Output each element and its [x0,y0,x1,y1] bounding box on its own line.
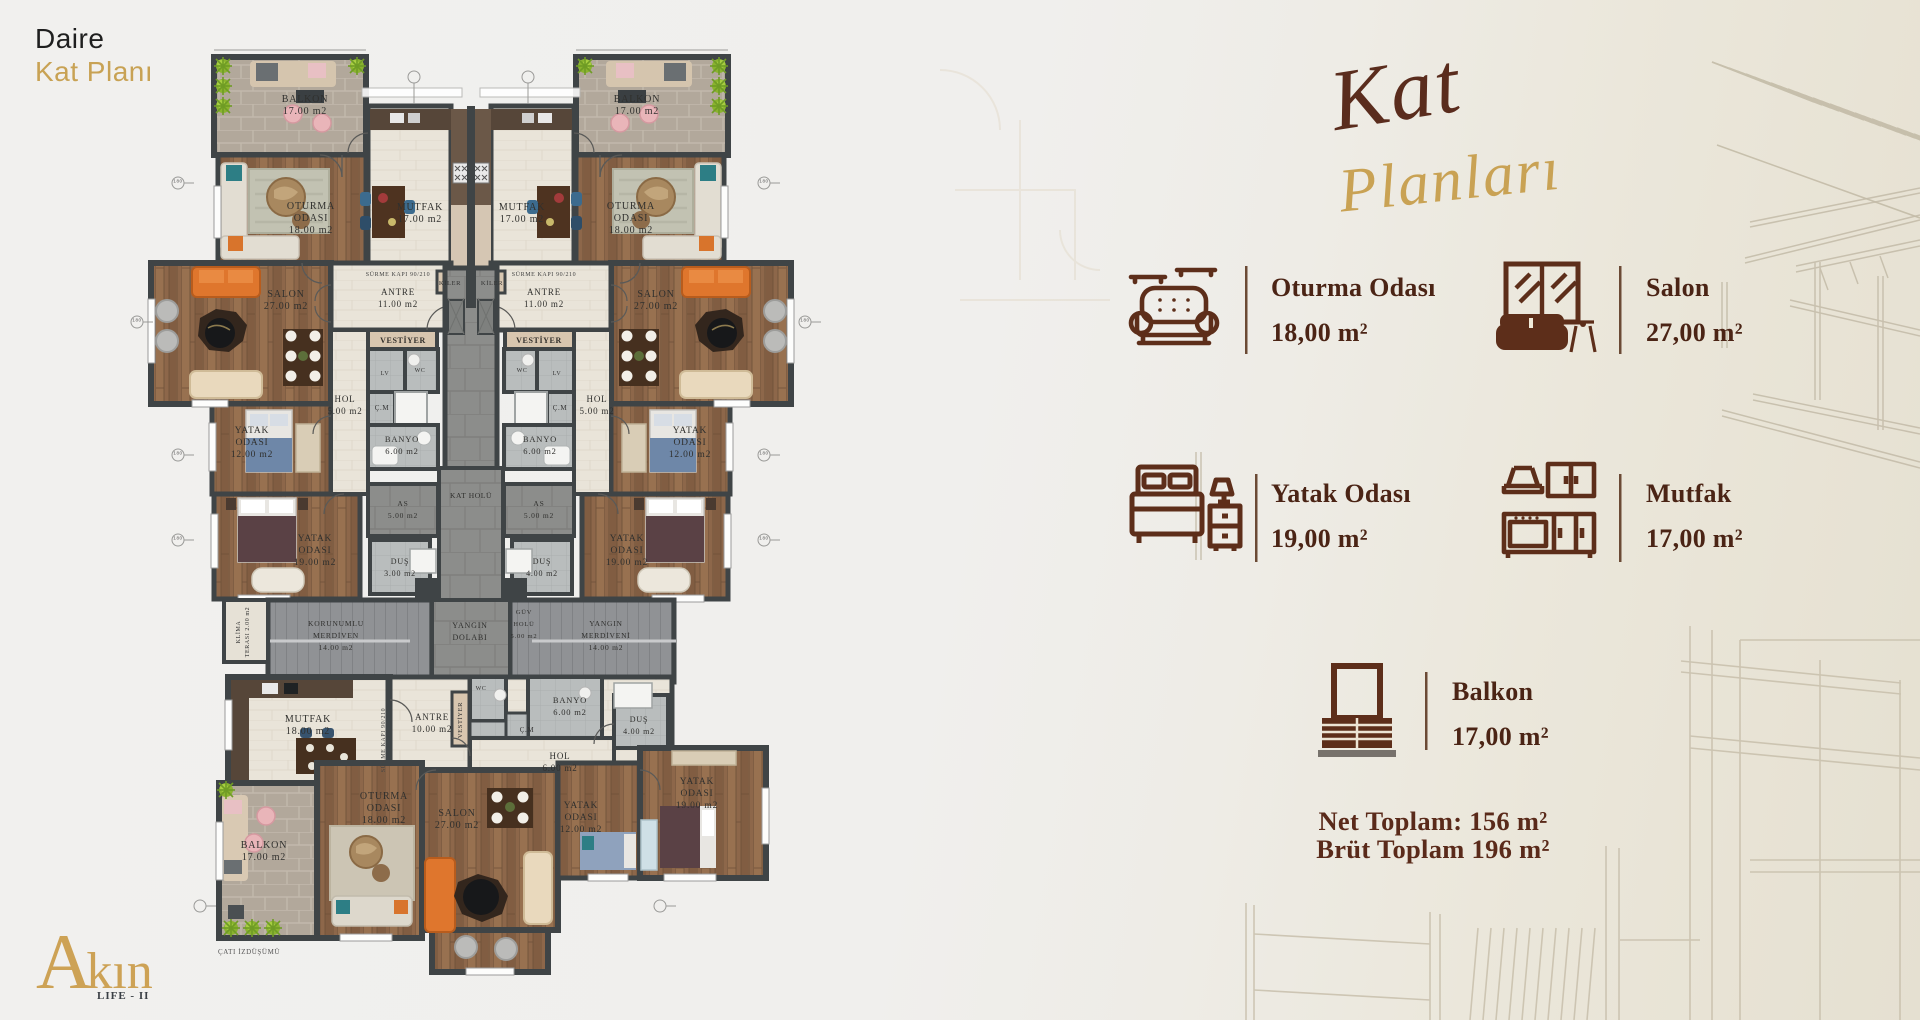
svg-text:180: 180 [173,451,182,456]
svg-text:Oturma Odası: Oturma Odası [1271,273,1436,302]
svg-text:YATAK: YATAK [610,534,644,544]
svg-text:BALKON: BALKON [282,94,328,105]
svg-text:180: 180 [173,179,182,184]
svg-text:18.00 m2: 18.00 m2 [286,726,330,737]
svg-text:18.00 m2: 18.00 m2 [289,225,333,236]
svg-text:KİLER: KİLER [439,280,461,287]
svg-text:ODASI: ODASI [610,546,643,556]
svg-text:OTURMA: OTURMA [287,201,335,212]
svg-text:Mutfak: Mutfak [1646,479,1732,508]
svg-text:Balkon: Balkon [1452,677,1534,706]
svg-text:YATAK: YATAK [235,426,269,436]
svg-text:14.00 m2: 14.00 m2 [589,643,624,652]
svg-text:12.00 m2: 12.00 m2 [669,450,711,460]
svg-text:KİLER: KİLER [481,280,503,287]
svg-text:17.00 m2: 17.00 m2 [398,214,442,225]
svg-text:VESTİYER: VESTİYER [516,335,562,345]
svg-text:17,00 m²: 17,00 m² [1452,722,1549,751]
svg-text:AS: AS [533,499,544,508]
svg-text:SÜRME KAPI 90/210: SÜRME KAPI 90/210 [380,708,387,773]
svg-text:19.00 m2: 19.00 m2 [676,801,718,811]
svg-text:180: 180 [759,536,768,541]
svg-text:12.00 m2: 12.00 m2 [560,825,602,835]
svg-text:17.00 m2: 17.00 m2 [242,852,286,863]
svg-text:5.00 m2: 5.00 m2 [327,406,362,416]
svg-text:180: 180 [173,536,182,541]
svg-text:DUŞ: DUŞ [533,557,551,566]
svg-text:YATAK: YATAK [680,777,714,787]
svg-text:SALON: SALON [637,289,674,300]
svg-text:GÜV: GÜV [516,609,532,616]
svg-text:LIFE - II: LIFE - II [97,990,149,1002]
svg-text:WC: WC [476,686,487,692]
svg-text:27,00 m²: 27,00 m² [1646,318,1743,347]
svg-text:LV: LV [553,371,562,377]
svg-text:YANGIN: YANGIN [589,619,623,628]
svg-text:27.00 m2: 27.00 m2 [634,301,678,312]
svg-text:HOL: HOL [550,751,571,761]
svg-text:AS: AS [397,499,408,508]
svg-text:OTURMA: OTURMA [607,201,655,212]
svg-text:BALKON: BALKON [614,94,660,105]
svg-text:11.00 m2: 11.00 m2 [524,299,564,309]
svg-text:MERDİVENİ: MERDİVENİ [581,631,630,640]
svg-text:KLİMA: KLİMA [235,621,242,644]
svg-text:YATAK: YATAK [298,534,332,544]
svg-text:ANTRE: ANTRE [415,712,449,722]
svg-text:YANGIN: YANGIN [452,621,487,630]
svg-text:Salon: Salon [1646,273,1710,302]
svg-text:TERASI 2.00 m2: TERASI 2.00 m2 [245,607,251,658]
svg-text:10.00 m2: 10.00 m2 [412,724,452,734]
svg-text:19.00 m2: 19.00 m2 [606,558,648,568]
svg-text:180: 180 [132,318,141,323]
svg-text:5.00 m2: 5.00 m2 [511,633,538,640]
svg-text:6.00 m2: 6.00 m2 [542,763,577,773]
svg-text:Daire: Daire [35,23,104,54]
svg-text:18.00 m2: 18.00 m2 [609,225,653,236]
svg-text:18.00 m2: 18.00 m2 [362,815,406,826]
svg-text:Ç.M: Ç.M [375,404,390,412]
svg-text:6.00 m2: 6.00 m2 [523,446,556,456]
svg-text:YATAK: YATAK [564,801,598,811]
svg-text:SALON: SALON [438,808,475,819]
svg-text:180: 180 [800,318,809,323]
svg-text:KAT HOLÜ: KAT HOLÜ [450,491,492,500]
svg-text:SALON: SALON [267,289,304,300]
svg-text:HOL: HOL [587,394,608,404]
svg-text:Ç.M: Ç.M [520,726,535,734]
svg-text:5.00 m2: 5.00 m2 [579,406,614,416]
svg-text:ODASI: ODASI [614,213,649,224]
svg-text:17,00 m²: 17,00 m² [1646,524,1743,553]
svg-text:19,00 m²: 19,00 m² [1271,524,1368,553]
svg-text:VESTİYER: VESTİYER [380,335,426,345]
svg-text:19.00 m2: 19.00 m2 [294,558,336,568]
svg-text:Net Toplam: 156 m²: Net Toplam: 156 m² [1318,806,1547,836]
svg-text:6.00 m2: 6.00 m2 [385,446,418,456]
svg-text:27.00 m2: 27.00 m2 [435,820,479,831]
svg-text:ANTRE: ANTRE [381,287,415,297]
svg-text:5.00 m2: 5.00 m2 [388,511,418,520]
svg-text:17.00 m2: 17.00 m2 [283,106,327,117]
svg-text:OTURMA: OTURMA [360,791,408,802]
svg-text:WC: WC [517,368,528,374]
svg-text:LV: LV [381,371,390,377]
svg-text:27.00 m2: 27.00 m2 [264,301,308,312]
svg-text:ODASI: ODASI [564,813,597,823]
svg-text:Kat Planı: Kat Planı [35,56,153,87]
svg-text:DUŞ: DUŞ [391,557,409,566]
svg-text:BALKON: BALKON [241,840,287,851]
svg-text:3.00 m2: 3.00 m2 [384,569,416,578]
svg-text:ÇATI İZDÜŞÜMÜ: ÇATI İZDÜŞÜMÜ [218,948,280,956]
svg-text:SÜRME KAPI 90/210: SÜRME KAPI 90/210 [512,271,577,278]
svg-text:BANYO: BANYO [553,695,587,705]
svg-text:ODASI: ODASI [680,789,713,799]
svg-text:DOLABI: DOLABI [452,633,487,642]
svg-text:ODASI: ODASI [367,803,402,814]
svg-text:MUTFAK: MUTFAK [397,202,443,213]
svg-text:11.00 m2: 11.00 m2 [378,299,418,309]
svg-text:17.00 m2: 17.00 m2 [615,106,659,117]
svg-text:Planları: Planları [1335,135,1565,226]
svg-text:DUŞ: DUŞ [630,715,648,724]
svg-text:SÜRME KAPI 90/210: SÜRME KAPI 90/210 [366,271,431,278]
svg-text:BANYO: BANYO [523,434,557,444]
svg-text:17.00 m2: 17.00 m2 [500,214,544,225]
svg-text:ODASI: ODASI [294,213,329,224]
svg-text:14.00 m2: 14.00 m2 [319,643,354,652]
svg-text:WC: WC [415,368,426,374]
svg-text:Yatak Odası: Yatak Odası [1271,479,1411,508]
svg-text:VESTİYER: VESTİYER [457,702,464,738]
svg-text:4.00 m2: 4.00 m2 [623,727,655,736]
svg-text:5.00 m2: 5.00 m2 [524,511,554,520]
svg-text:ANTRE: ANTRE [527,287,561,297]
svg-text:4.00 m2: 4.00 m2 [526,569,558,578]
svg-text:HOLÜ: HOLÜ [513,621,534,628]
svg-text:ODASI: ODASI [298,546,331,556]
svg-text:180: 180 [759,179,768,184]
svg-text:Ç.M: Ç.M [553,404,568,412]
svg-text:180: 180 [759,451,768,456]
svg-text:KORUNUMLU: KORUNUMLU [308,619,364,628]
svg-text:MERDİVEN: MERDİVEN [313,631,359,640]
svg-text:Brüt Toplam 196 m²: Brüt Toplam 196 m² [1316,834,1549,864]
svg-text:18,00 m²: 18,00 m² [1271,318,1368,347]
svg-text:MUTFAK: MUTFAK [499,202,545,213]
svg-text:12.00 m2: 12.00 m2 [231,450,273,460]
svg-text:6.00 m2: 6.00 m2 [553,707,586,717]
svg-text:YATAK: YATAK [673,426,707,436]
svg-text:BANYO: BANYO [385,434,419,444]
svg-text:HOL: HOL [335,394,356,404]
svg-text:Kat: Kat [1322,34,1468,150]
svg-text:ODASI: ODASI [235,438,268,448]
svg-text:MUTFAK: MUTFAK [285,714,331,725]
svg-text:ODASI: ODASI [673,438,706,448]
